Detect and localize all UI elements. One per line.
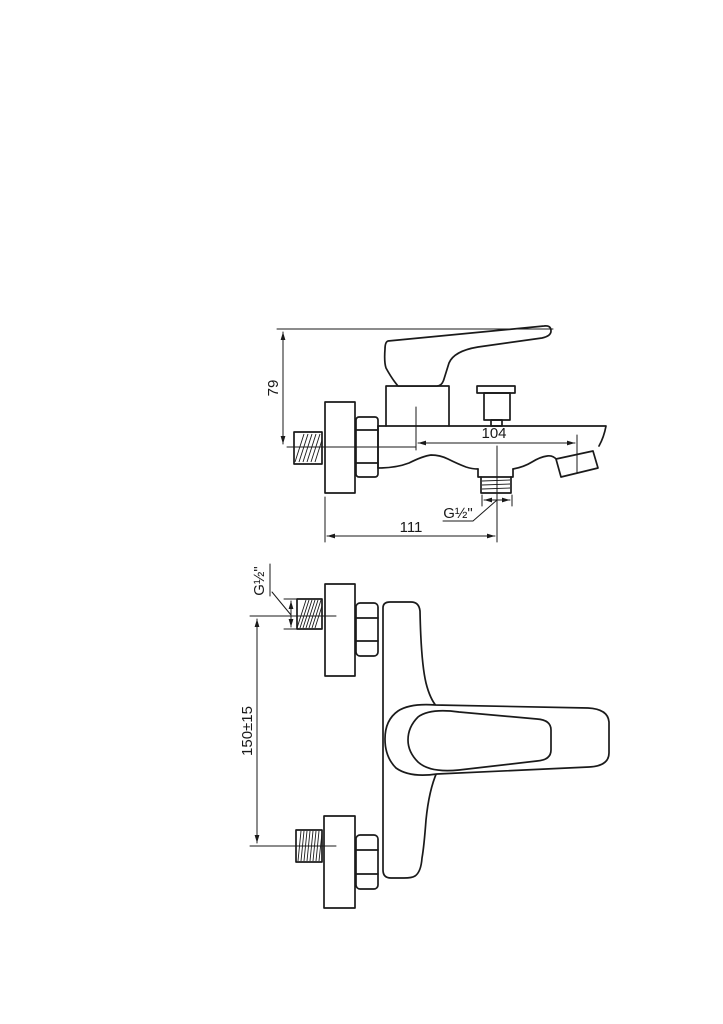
outlet-thread-hatch: [482, 480, 510, 489]
spout-underside-right: [513, 456, 557, 469]
spout-underside-left: [378, 455, 478, 469]
dimension-wall-depth: 111: [325, 446, 497, 542]
upper-hex-nut-front: [356, 603, 378, 656]
leader-inlet-thread: [270, 564, 291, 615]
upper-hex-nut-facets: [356, 618, 378, 641]
diverter-cap: [477, 386, 515, 393]
faucet-technical-drawing: 79 104 G½" 111: [0, 0, 723, 1024]
side-view: 79 104 G½" 111: [265, 326, 606, 542]
cartridge-housing: [386, 386, 449, 426]
dim-label-104: 104: [481, 425, 506, 442]
upper-flange-front: [325, 584, 355, 676]
outlet-thread-label: G½": [443, 505, 473, 522]
dimension-inlet-spacing: 150±15: [239, 616, 336, 846]
dim-label-111: 111: [400, 519, 423, 536]
dim-label-79: 79: [265, 380, 282, 397]
faucet-body-side: [378, 326, 606, 493]
lower-hex-nut-front: [356, 835, 378, 889]
upper-thread-hatch: [297, 600, 322, 628]
inlet-thread-callout: G½": [251, 564, 297, 629]
diverter-knob: [477, 386, 515, 426]
dim-label-150: 150±15: [239, 706, 256, 756]
lower-connection-front: [296, 816, 378, 908]
front-view: G½" 150±15: [239, 564, 609, 908]
diverter-body: [484, 393, 510, 420]
lever-handle-front: [385, 705, 609, 776]
lower-flange-front: [324, 816, 355, 908]
outlet-thread-callout: G½": [443, 495, 512, 522]
upper-connection-front: [297, 584, 378, 676]
outlet-flange: [478, 469, 513, 477]
lower-hex-nut-facets: [356, 850, 378, 874]
inlet-thread-hatch: [295, 434, 322, 462]
lever-handle-side: [385, 326, 551, 386]
inlet-thread-label: G½": [251, 566, 268, 596]
drawing-canvas: 79 104 G½" 111: [0, 0, 723, 1024]
